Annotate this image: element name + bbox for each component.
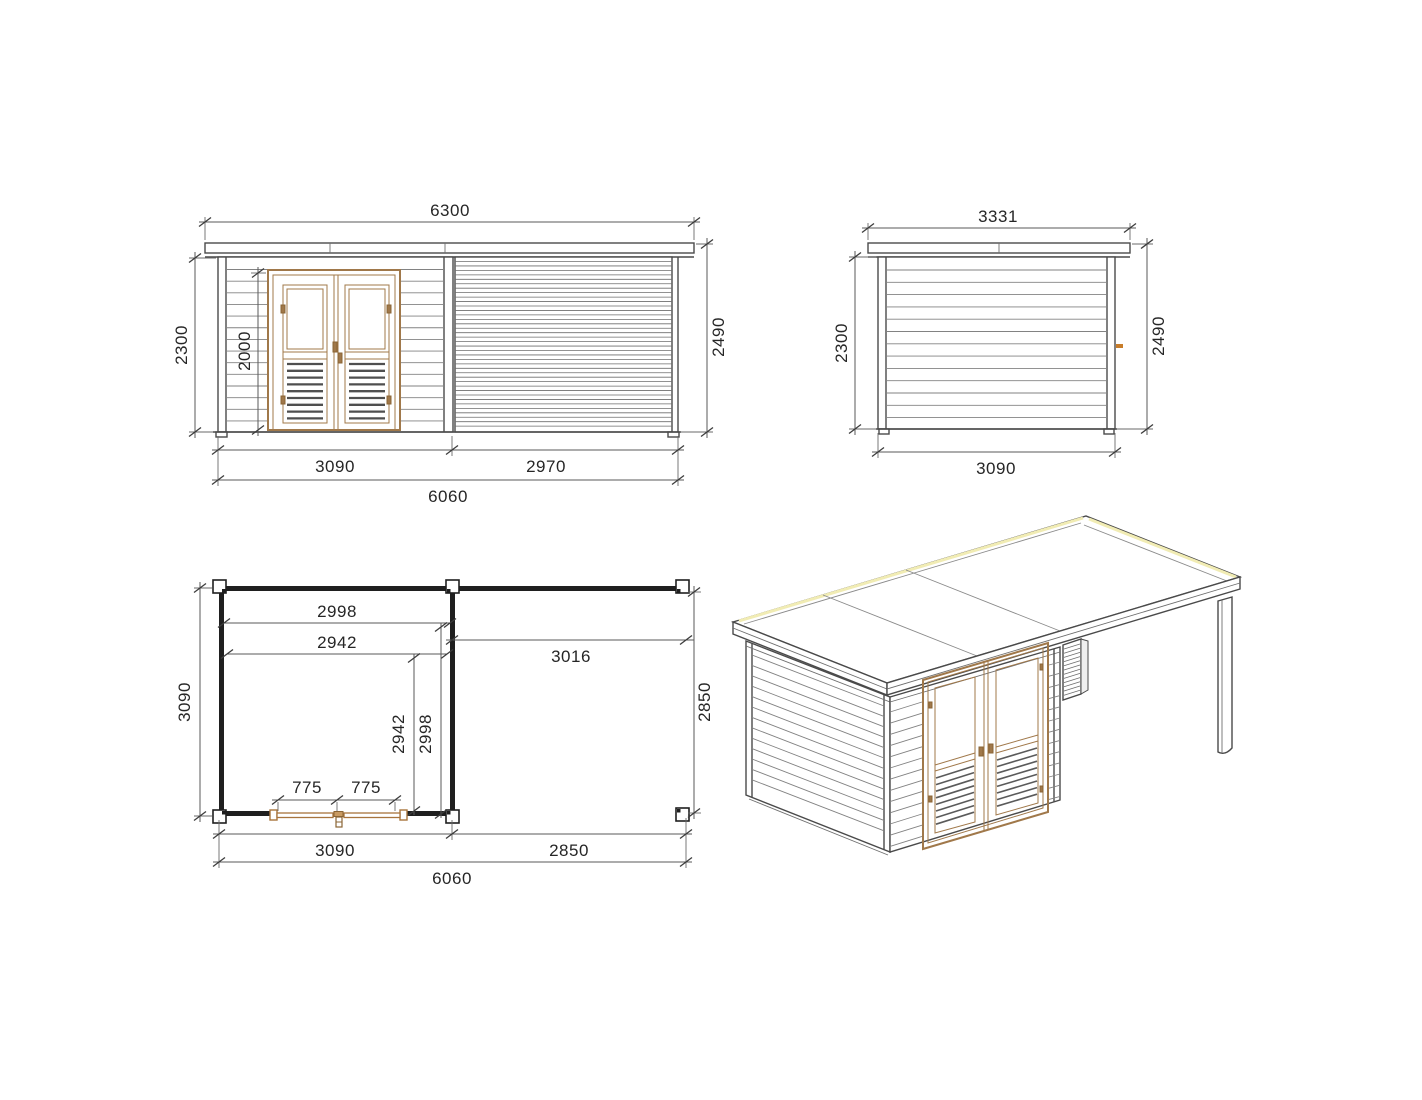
dim-plan-inner-depth-b: 2998 xyxy=(416,623,447,819)
dim-label: 2998 xyxy=(317,602,357,621)
side-foot-left xyxy=(879,429,889,434)
dim-side-wall-height: 2300 xyxy=(832,251,876,435)
dim-plan-canopy-depth-right: 2850 xyxy=(688,586,714,819)
plan-canopy-beam xyxy=(455,586,683,591)
door-hinge-icon xyxy=(387,396,391,404)
dim-plan-bottom-widths: 3090 2850 6060 xyxy=(213,818,692,888)
dim-side-roof-depth: 3331 xyxy=(862,207,1136,240)
front-foot-right xyxy=(668,432,679,437)
dim-label: 2850 xyxy=(549,841,589,860)
dim-label: 3090 xyxy=(315,457,355,476)
dim-plan-door-leaves: 775 775 xyxy=(272,778,401,811)
dim-label: 3090 xyxy=(976,459,1016,478)
dim-front-bottom-widths: 3090 2970 6060 xyxy=(212,436,684,506)
dim-label: 2300 xyxy=(832,323,851,363)
dim-label: 775 xyxy=(351,778,381,797)
dim-label: 3016 xyxy=(551,647,591,666)
dim-side-overall-height: 2490 xyxy=(1117,238,1168,435)
dim-label: 3090 xyxy=(175,682,194,722)
dim-plan-inner-width: 2998 xyxy=(218,602,456,628)
side-wall xyxy=(878,257,1123,434)
door-hinge-icon xyxy=(281,396,285,404)
dim-front-overall-height: 2490 xyxy=(681,238,728,438)
dim-label: 2850 xyxy=(695,682,714,722)
dim-plan-depth-left: 3090 xyxy=(175,582,212,822)
front-roof xyxy=(205,243,694,257)
iso-3d-view xyxy=(733,516,1240,855)
iso-canopy-post xyxy=(1218,597,1232,753)
door-hinge-icon xyxy=(1040,786,1043,792)
dim-front-roof-width: 6300 xyxy=(199,201,700,240)
side-foot-right xyxy=(1104,429,1114,434)
door-hinge-icon xyxy=(387,305,391,313)
dim-side-wall-depth: 3090 xyxy=(872,433,1121,478)
front-canopy-wall xyxy=(455,257,679,437)
plan-door-symbol xyxy=(270,810,407,827)
iso-louver-panel xyxy=(1063,639,1088,700)
side-door-handle-icon xyxy=(1116,344,1123,348)
dim-label: 6300 xyxy=(430,201,470,220)
door-hinge-icon xyxy=(281,305,285,313)
dim-label: 2942 xyxy=(317,633,357,652)
dim-label: 2490 xyxy=(1149,316,1168,356)
door-hinge-icon xyxy=(1040,664,1043,670)
door-handle-icon xyxy=(338,353,342,363)
dim-plan-canopy-opening: 3016 xyxy=(446,636,694,667)
drawing-page: 6300 2300 2000 2490 3090 xyxy=(0,0,1422,1100)
dim-label: 3331 xyxy=(978,207,1018,226)
dim-label: 2942 xyxy=(389,714,408,754)
dim-label: 2000 xyxy=(235,331,254,371)
door-handle-icon xyxy=(979,747,983,756)
door-hinge-icon xyxy=(929,796,932,802)
dim-label: 775 xyxy=(292,778,322,797)
dim-label: 6060 xyxy=(428,487,468,506)
door-hinge-icon xyxy=(929,702,932,708)
dim-label: 2998 xyxy=(416,714,435,754)
dim-label: 2300 xyxy=(172,325,191,365)
technical-drawing-canvas: 6300 2300 2000 2490 3090 xyxy=(0,0,1422,1100)
dim-label: 2490 xyxy=(709,317,728,357)
side-elevation-view: 3331 2300 2490 3090 xyxy=(832,207,1168,478)
door-handle-icon xyxy=(989,744,993,753)
door-handle-icon xyxy=(333,342,337,352)
dim-front-wall-height: 2300 xyxy=(172,252,216,438)
dim-label: 6060 xyxy=(432,869,472,888)
dim-label: 3090 xyxy=(315,841,355,860)
side-roof xyxy=(868,243,1130,257)
dim-label: 2970 xyxy=(526,457,566,476)
front-elevation-view: 6300 2300 2000 2490 3090 xyxy=(172,201,728,506)
floor-plan-view: 3090 2998 2942 3016 2942 2998 xyxy=(175,580,714,888)
